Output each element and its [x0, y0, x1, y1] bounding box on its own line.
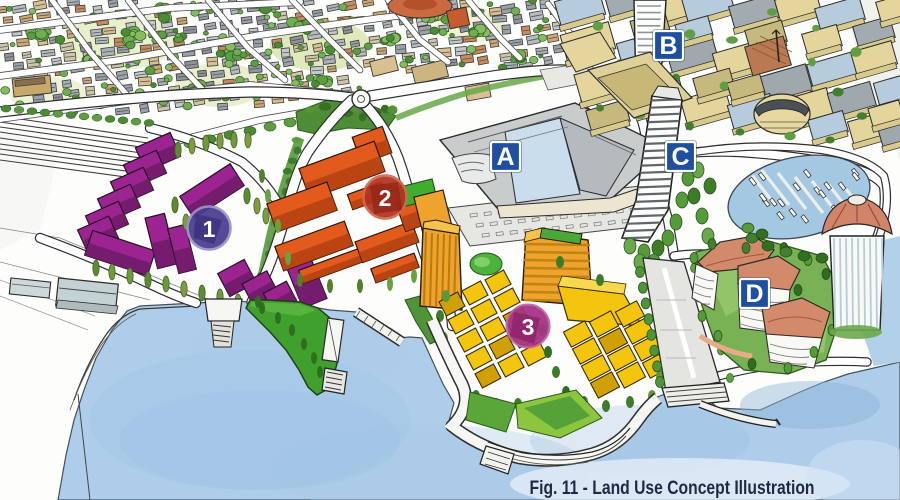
svg-text:B: B	[659, 32, 677, 60]
svg-text:D: D	[745, 280, 763, 308]
svg-text:1: 1	[203, 216, 216, 242]
svg-text:C: C	[671, 143, 689, 171]
svg-text:2: 2	[379, 185, 392, 211]
svg-text:A: A	[496, 143, 514, 171]
svg-text:Fig. 11 - Land Use Concept Ill: Fig. 11 - Land Use Concept Illustration	[530, 477, 815, 499]
svg-text:3: 3	[522, 314, 535, 340]
